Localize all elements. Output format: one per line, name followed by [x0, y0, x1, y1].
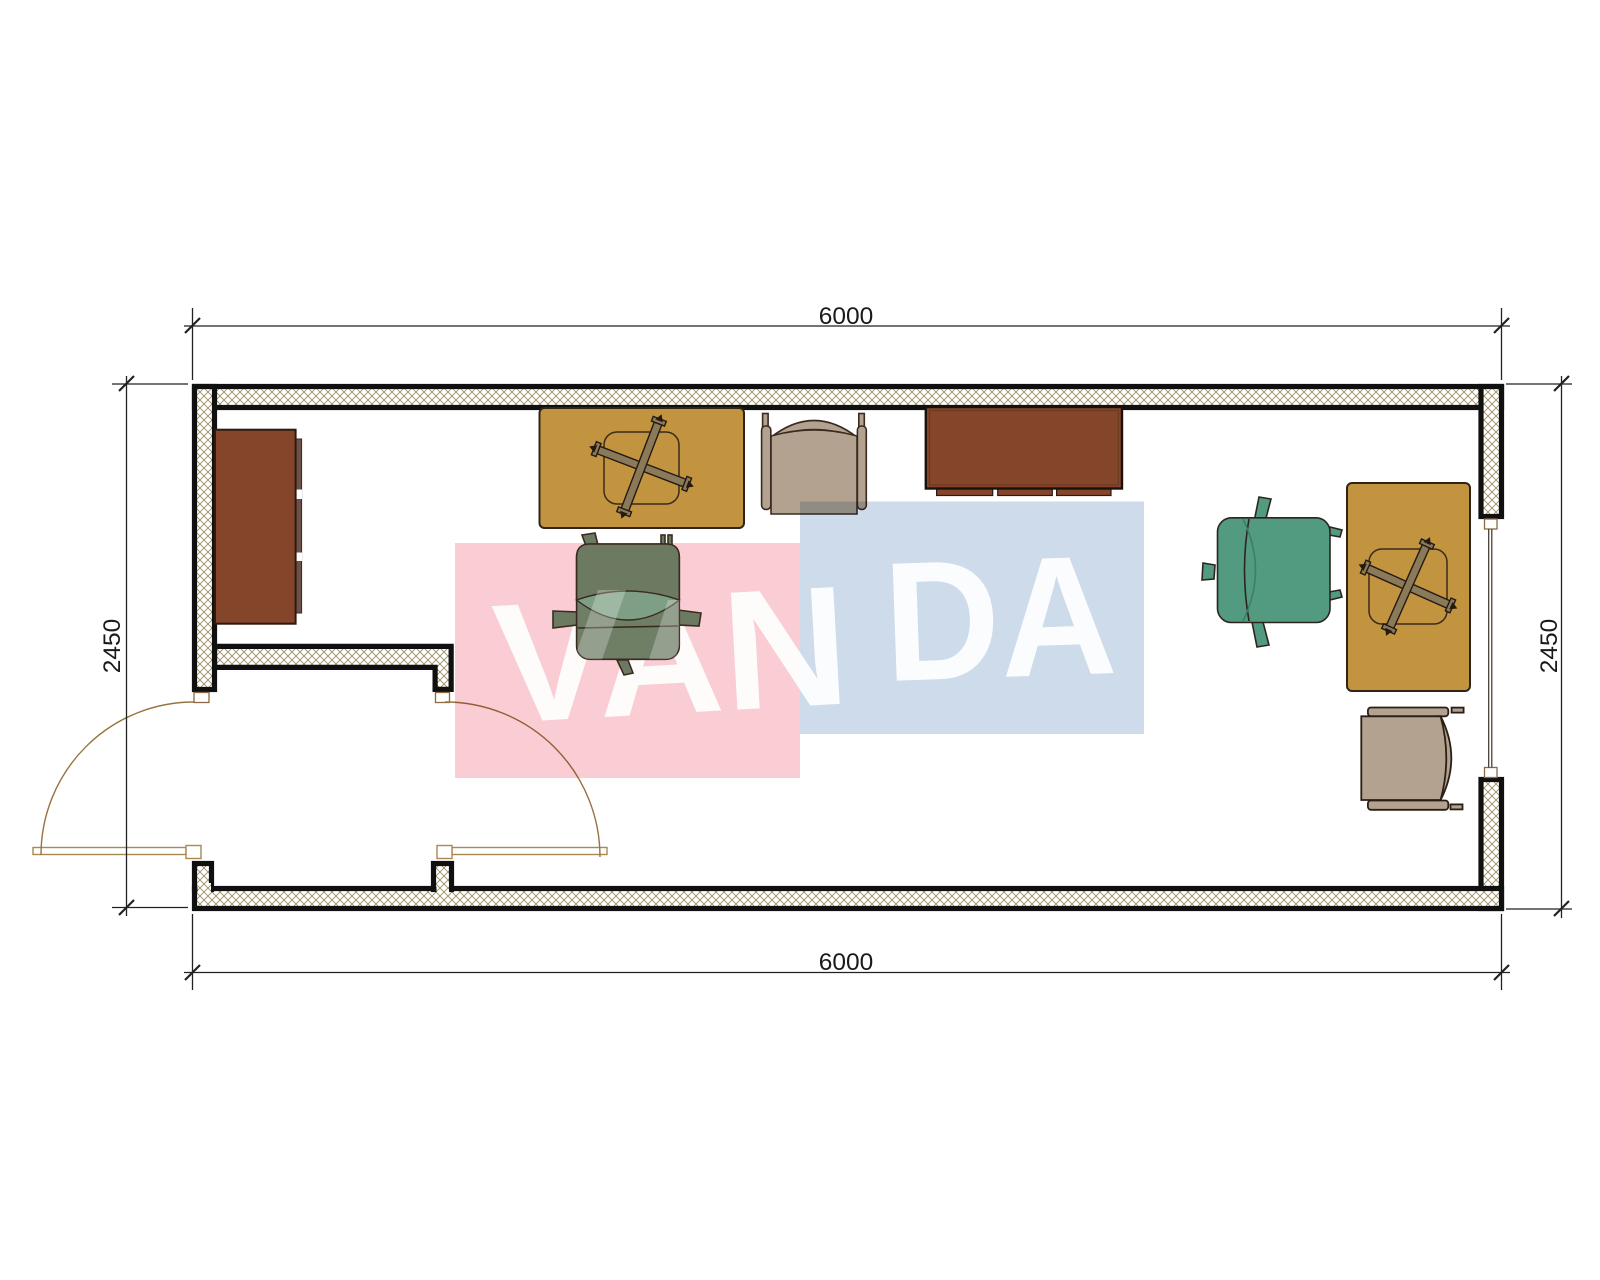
svg-text:DA: DA [881, 520, 1119, 718]
svg-text:2450: 2450 [99, 619, 126, 674]
svg-text:6000: 6000 [819, 949, 874, 976]
svg-text:2450: 2450 [1536, 619, 1563, 674]
svg-text:6000: 6000 [819, 303, 874, 330]
